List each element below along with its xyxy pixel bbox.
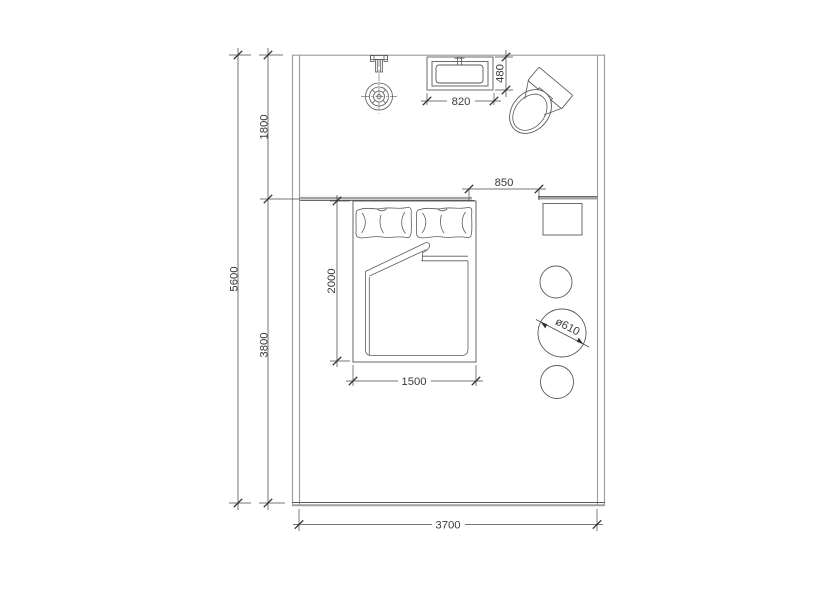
dim-label-bath-zone: 1800 [259, 114, 271, 139]
duvet-fold-inner [370, 250, 427, 277]
dim-label-opening: 850 [495, 177, 514, 189]
dim-room-width: 3700 [293, 509, 603, 532]
shower-valve-plate [371, 56, 388, 60]
duvet-fold-edge [366, 244, 425, 272]
dim-label-room-depth: 5600 [229, 266, 241, 291]
dim-label-bed-zone: 3800 [259, 332, 271, 357]
dim-label-basin-depth: 480 [495, 64, 507, 83]
dim-label-room-width: 3700 [435, 520, 460, 532]
dim-label-bed-length: 2000 [326, 268, 338, 293]
toilet [498, 67, 573, 144]
bed-frame [353, 201, 476, 362]
dim-zone-depths: 1800 3800 [259, 48, 301, 510]
dim-basin-depth: 480 [495, 50, 514, 97]
floor-plan-drawing: 5600 1800 3800 3700 850 [0, 0, 837, 592]
duvet-fold-curl [422, 243, 429, 261]
nightstand [543, 204, 582, 236]
dim-basin-width: 820 [421, 93, 501, 108]
bed [353, 201, 476, 362]
shower-valve-tab-left [371, 56, 375, 62]
stool-top [540, 266, 572, 298]
basin-bowl [436, 65, 483, 83]
dim-label-bed-width: 1500 [401, 376, 426, 388]
pillow-right [416, 207, 471, 238]
shower-fixture [361, 56, 397, 115]
dim-bed-length: 2000 [326, 195, 350, 367]
dim-label-basin-width: 820 [452, 96, 471, 108]
wash-basin [427, 57, 493, 90]
shower-valve-tab-right [384, 56, 388, 62]
duvet-body [366, 261, 469, 356]
pillow-left [356, 207, 411, 238]
stool-bottom [541, 366, 574, 399]
floor-plan-canvas: 5600 1800 3800 3700 850 [0, 0, 837, 592]
duvet [366, 243, 469, 356]
dim-bed-width: 1500 [346, 365, 483, 388]
dim-room-depth: 5600 [229, 48, 252, 510]
dim-opening: 850 [462, 177, 546, 200]
side-furniture [538, 204, 586, 399]
